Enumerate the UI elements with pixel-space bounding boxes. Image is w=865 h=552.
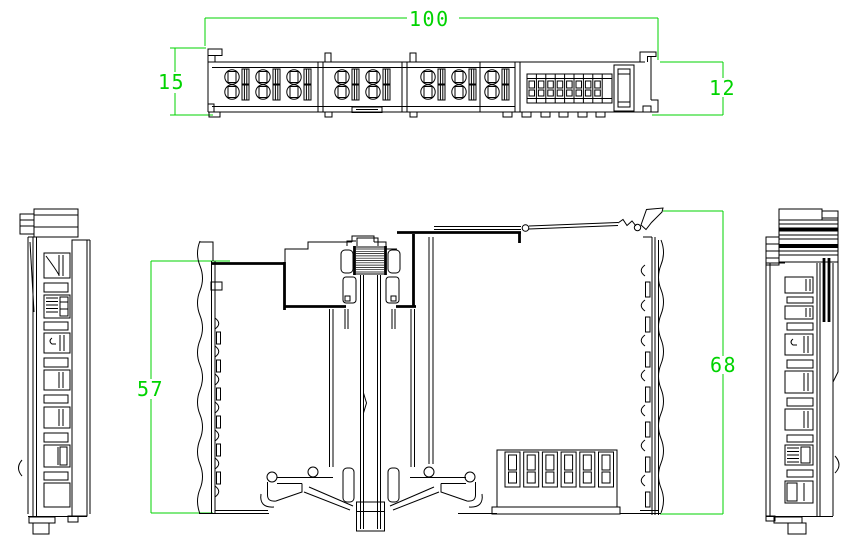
engineering-drawing: 100 15 12 57 bbox=[0, 0, 865, 552]
din-rail-feet bbox=[261, 467, 482, 531]
top-view bbox=[208, 49, 658, 117]
dim-label-100: 100 bbox=[409, 7, 450, 31]
release-lever bbox=[434, 208, 663, 231]
dimension-annotations: 100 15 12 57 bbox=[137, 7, 737, 514]
mounting-feet-top bbox=[503, 112, 605, 117]
front-section-view bbox=[198, 208, 664, 531]
drawing-canvas: 100 15 12 57 bbox=[0, 0, 865, 552]
dim-label-12: 12 bbox=[709, 76, 736, 100]
terminal-contacts bbox=[225, 69, 509, 100]
comb-connector-top bbox=[527, 74, 612, 103]
dim-label-68: 68 bbox=[710, 353, 737, 377]
dim-label-15: 15 bbox=[158, 70, 185, 94]
dimension-top-width: 100 bbox=[205, 7, 658, 60]
latch-top bbox=[614, 52, 658, 112]
left-side-view bbox=[19, 209, 91, 534]
center-shaft bbox=[361, 275, 381, 529]
dimension-front-overall-height: 68 bbox=[660, 211, 737, 514]
dim-label-57: 57 bbox=[137, 377, 164, 401]
right-side-view bbox=[766, 209, 839, 534]
right-wavy-edge bbox=[659, 240, 664, 513]
spring-clamp bbox=[285, 233, 521, 310]
bus-connector-front bbox=[492, 450, 620, 514]
dimension-top-right-height: 12 bbox=[652, 62, 736, 115]
dimension-top-left-height: 15 bbox=[158, 48, 213, 115]
left-wavy-edge bbox=[198, 241, 203, 514]
